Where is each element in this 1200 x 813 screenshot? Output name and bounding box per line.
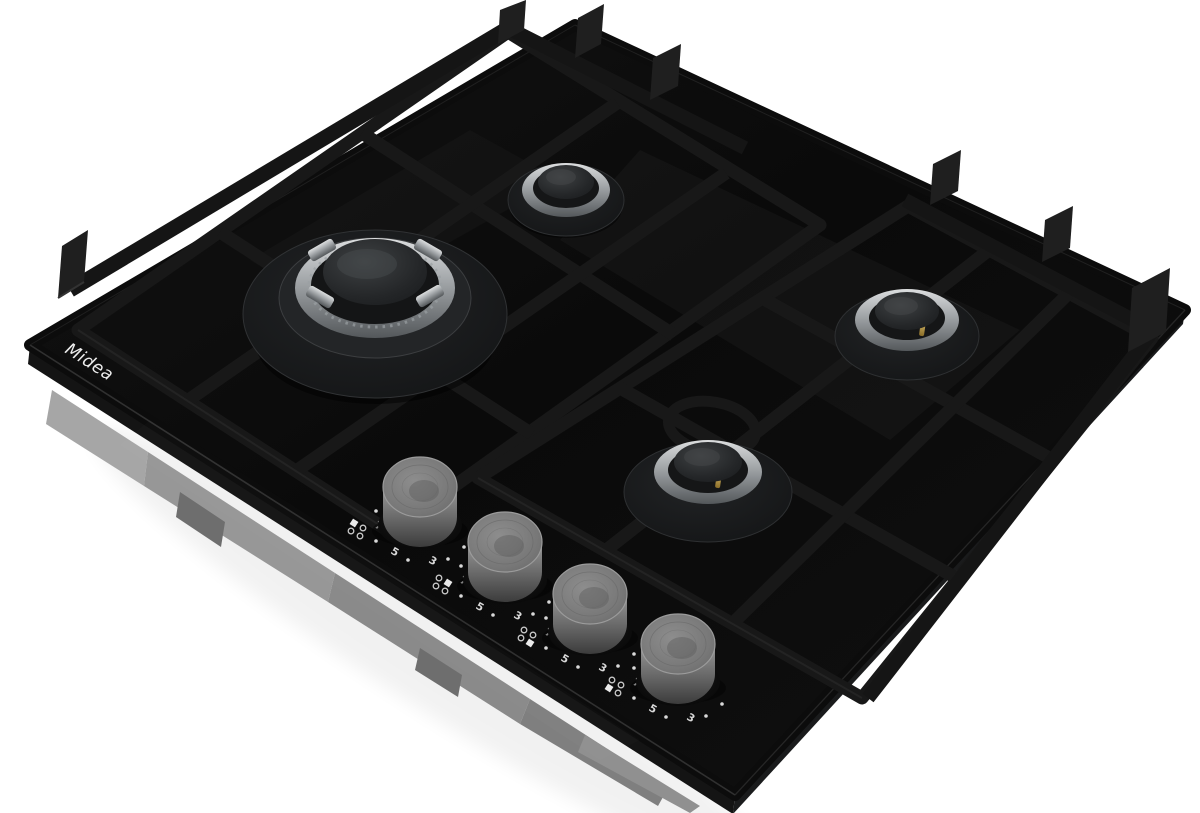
product-photo: Midea <box>0 0 1200 813</box>
wok-burner <box>243 230 507 404</box>
auxiliary-burner <box>508 163 624 238</box>
